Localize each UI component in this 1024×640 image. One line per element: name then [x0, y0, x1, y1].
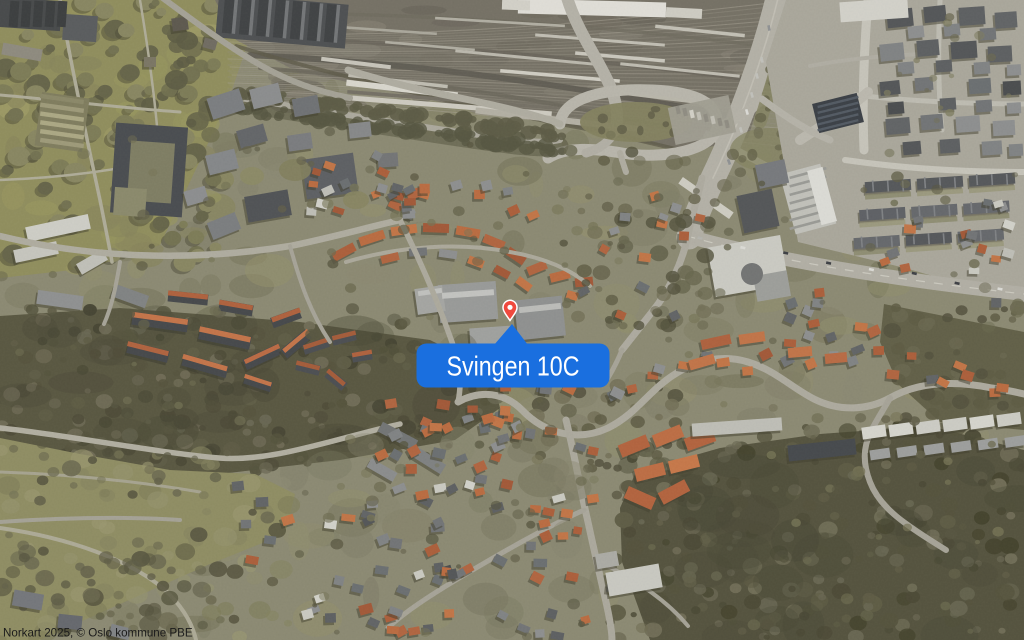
svg-text:Norkart 2025, © Oslo kommune P: Norkart 2025, © Oslo kommune PBE	[3, 627, 193, 640]
svg-text:Svingen 10C: Svingen 10C	[447, 351, 580, 382]
